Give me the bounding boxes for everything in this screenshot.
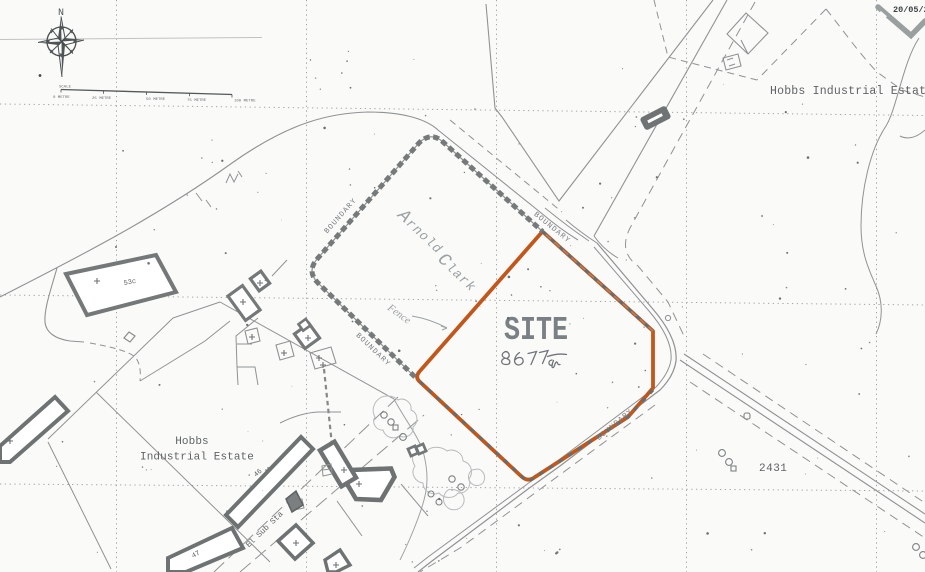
svg-text:100 METRE: 100 METRE xyxy=(234,100,256,104)
svg-text:Hobbs: Hobbs xyxy=(175,436,209,448)
svg-text:20/05/200: 20/05/200 xyxy=(893,5,925,15)
svg-text:25 METRE: 25 METRE xyxy=(92,97,112,101)
svg-text:SITE: SITE xyxy=(504,312,568,349)
svg-text:SCALE: SCALE xyxy=(59,86,72,90)
svg-text:Hobbs Industrial Estate: Hobbs Industrial Estate xyxy=(770,85,925,98)
svg-text:75 METRE: 75 METRE xyxy=(187,99,207,103)
svg-text:N: N xyxy=(58,8,64,19)
svg-text:2431: 2431 xyxy=(759,463,787,475)
svg-text:50 METRE: 50 METRE xyxy=(146,98,166,102)
svg-text:Industrial Estate: Industrial Estate xyxy=(140,452,254,464)
svg-text:0 METRE: 0 METRE xyxy=(53,96,70,100)
